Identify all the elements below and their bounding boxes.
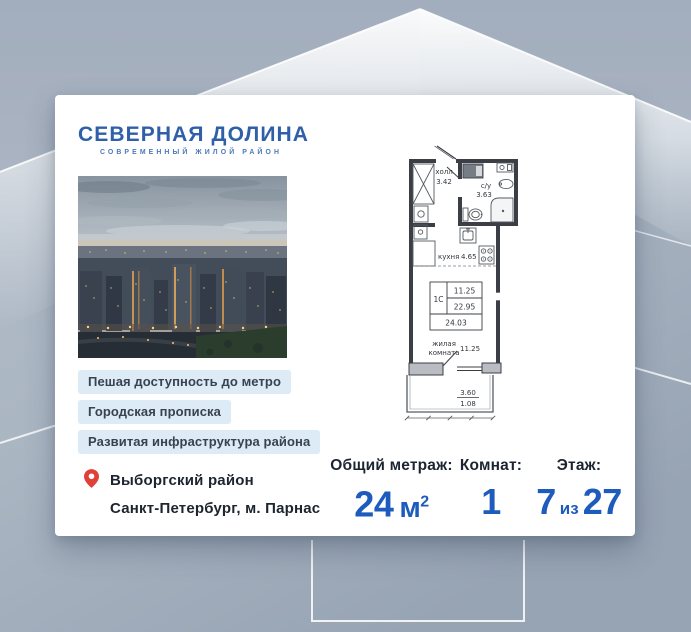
plan-hall-area: 3.42 xyxy=(436,178,452,186)
stat-floor-label: Этаж: xyxy=(527,457,631,475)
stat-floor-total: 27 xyxy=(583,481,622,522)
stat-total-area-unit: м xyxy=(399,492,420,524)
feature-badges: Пешая доступность до метро Городская про… xyxy=(78,370,320,454)
location-district: Выборгский район xyxy=(110,467,320,495)
stats-row: Общий метраж: 24м2 Комнат: 1 Этаж: 7из27 xyxy=(328,457,631,527)
plan-bathroom-label: с/у xyxy=(481,182,491,190)
badge-metro: Пешая доступность до метро xyxy=(78,370,291,394)
stat-floor-current: 7 xyxy=(536,481,556,522)
stat-rooms-label: Комнат: xyxy=(455,457,527,475)
stat-total-area-sup: 2 xyxy=(420,493,428,510)
brand-logo: СЕВЕРНАЯ ДОЛИНА СОВРЕМЕННЫЙ ЖИЛОЙ РАЙОН xyxy=(78,124,304,156)
brand-subtitle: СОВРЕМЕННЫЙ ЖИЛОЙ РАЙОН xyxy=(78,149,304,156)
location-block: Выборгский район Санкт-Петербург, м. Пар… xyxy=(84,467,320,523)
location-pin-icon xyxy=(84,469,99,488)
plan-unit-type: 1С xyxy=(433,295,443,304)
plan-hall-label: холл xyxy=(435,168,452,176)
plan-kitchen-area: 4.65 xyxy=(461,253,477,261)
stat-total-area-value: 24 xyxy=(354,484,393,525)
plan-area-living: 11.25 xyxy=(454,287,476,296)
stat-floor: Этаж: 7из27 xyxy=(527,457,631,527)
plan-room-label-2: комната xyxy=(428,349,459,357)
stat-total-area-label: Общий метраж: xyxy=(328,457,455,475)
plan-room-label-1: жилая xyxy=(432,340,456,348)
plan-area-no-balcony: 22.95 xyxy=(454,303,476,312)
plan-balcony-dim-bottom: 1.08 xyxy=(460,400,476,408)
plan-bathroom-area: 3.63 xyxy=(476,191,492,199)
plan-area-total: 24.03 xyxy=(445,319,467,328)
listing-card[interactable]: СЕВЕРНАЯ ДОЛИНА СОВРЕМЕННЫЙ ЖИЛОЙ РАЙОН xyxy=(55,95,635,536)
plan-kitchen-label: кухня xyxy=(438,253,459,261)
brand-title: СЕВЕРНАЯ ДОЛИНА xyxy=(78,124,304,146)
stat-total-area: Общий метраж: 24м2 xyxy=(328,457,455,527)
complex-photo xyxy=(78,176,287,358)
floor-plan: холл 3.42 с/у 3.63 жилая комната 3.60 1.… xyxy=(398,145,545,440)
stat-rooms: Комнат: 1 xyxy=(455,457,527,527)
stat-rooms-value: 1 xyxy=(455,484,527,520)
plan-balcony-dim-top: 3.60 xyxy=(460,389,476,397)
stat-floor-infix: из xyxy=(560,499,579,518)
location-city: Санкт-Петербург, м. Парнас xyxy=(110,495,320,523)
badge-registration: Городская прописка xyxy=(78,400,231,424)
plan-room-area: 11.25 xyxy=(460,345,480,353)
badge-infrastructure: Развитая инфраструктура района xyxy=(78,430,320,454)
